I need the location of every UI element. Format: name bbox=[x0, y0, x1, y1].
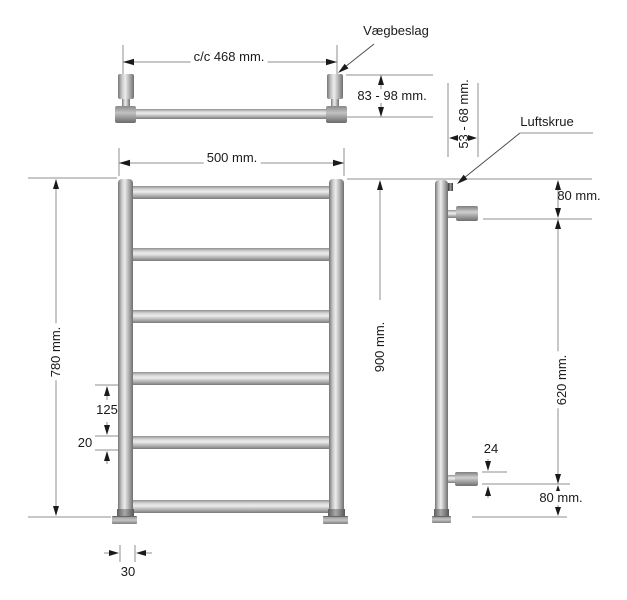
width-label: 500 mm. bbox=[204, 151, 261, 165]
mounting-depth-label: 83 - 98 mm. bbox=[354, 89, 429, 103]
rung-diameter-label: 20 bbox=[78, 436, 92, 450]
rung-2 bbox=[133, 248, 329, 261]
mounting-height-label: 900 mm. bbox=[373, 319, 387, 376]
top-bracket-offset-label: 80 mm. bbox=[557, 189, 600, 203]
rung-6 bbox=[133, 500, 329, 513]
side-bracket-top bbox=[456, 206, 478, 221]
center-distance-label: c/c 468 mm. bbox=[191, 50, 268, 64]
rung-1 bbox=[133, 186, 329, 199]
bracket-diameter-label: 24 bbox=[484, 442, 498, 456]
tube-diameter-label: 30 bbox=[121, 565, 135, 579]
wall-bracket-left bbox=[118, 74, 134, 99]
rung-5 bbox=[133, 436, 329, 449]
tube-ferrule-right bbox=[328, 509, 345, 516]
rung-3 bbox=[133, 310, 329, 323]
rail-end-left bbox=[115, 106, 136, 123]
wall-bracket-label: Vægbeslag bbox=[363, 24, 429, 38]
side-tube-foot bbox=[432, 516, 451, 523]
radiator-dimensional-drawing: c/c 468 mm. Vægbeslag 83 - 98 mm. 500 mm… bbox=[0, 0, 627, 600]
bottom-bracket-offset-label: 80 mm. bbox=[536, 491, 585, 505]
tube-foot-left bbox=[112, 516, 137, 524]
tube-ferrule-left bbox=[117, 509, 134, 516]
rung-4 bbox=[133, 372, 329, 385]
rung-spacing-label: 125 bbox=[96, 403, 118, 417]
tube-foot-right bbox=[323, 516, 348, 524]
vertical-tube-left bbox=[118, 179, 133, 517]
bracket-spacing-label: 620 mm. bbox=[555, 352, 569, 409]
side-bracket-bottom bbox=[455, 472, 478, 486]
wall-bracket-right bbox=[327, 74, 343, 99]
side-tube-ferrule bbox=[434, 509, 449, 516]
wall-clearance-label: 53 - 68 mm. bbox=[457, 79, 471, 148]
vertical-tube-right bbox=[329, 179, 344, 517]
side-view-tube bbox=[435, 180, 448, 517]
air-screw-label: Luftskrue bbox=[520, 115, 573, 129]
air-screw bbox=[448, 183, 453, 191]
rail-tube-top-view bbox=[130, 109, 333, 119]
rail-end-right bbox=[326, 106, 347, 123]
height-label: 780 mm. bbox=[49, 324, 63, 381]
